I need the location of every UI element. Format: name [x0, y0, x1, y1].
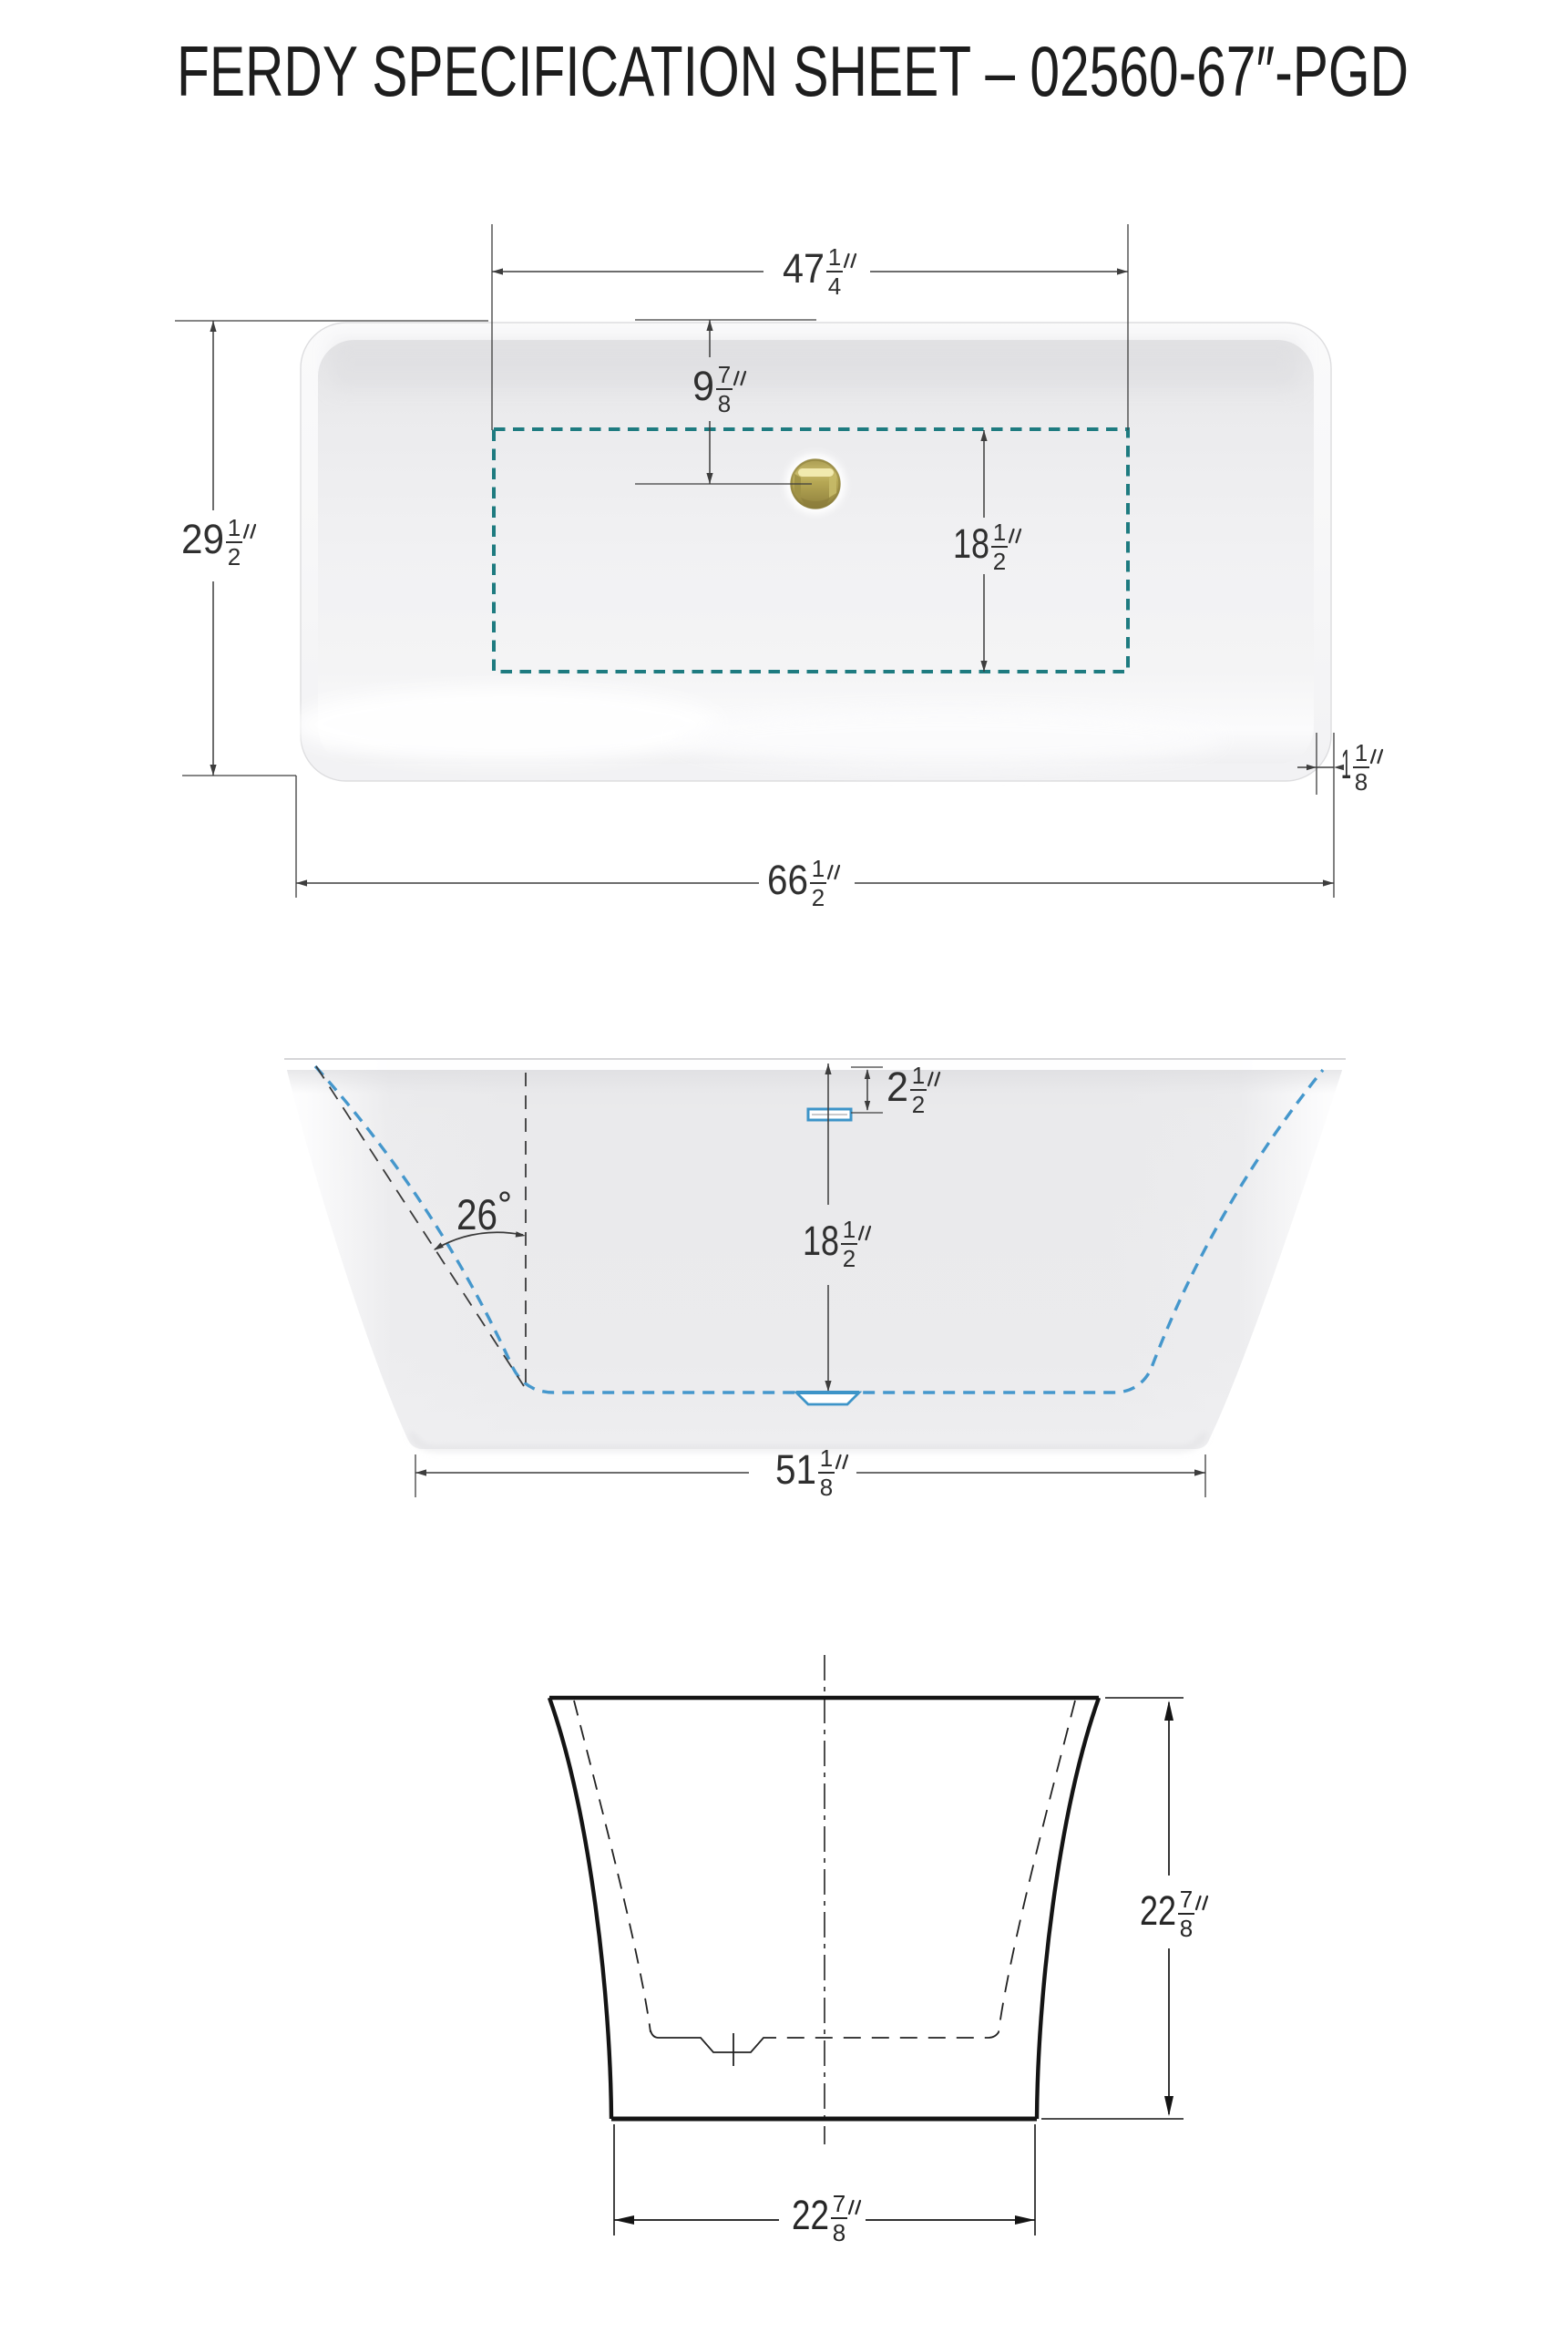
svg-text:8: 8 [833, 2219, 845, 2246]
svg-text:1: 1 [1355, 739, 1368, 766]
svg-text:51: 51 [775, 1446, 816, 1493]
svg-text:1: 1 [843, 1216, 856, 1243]
svg-text:29: 29 [181, 516, 224, 562]
svg-text:18: 18 [803, 1218, 839, 1264]
svg-text:1: 1 [820, 1444, 833, 1472]
svg-text:2: 2 [886, 1064, 908, 1110]
svg-text:26: 26 [456, 1190, 497, 1238]
svg-text:2: 2 [912, 1091, 925, 1118]
svg-text:22: 22 [792, 2192, 829, 2238]
svg-text:8: 8 [1180, 1915, 1193, 1942]
svg-text:8: 8 [718, 390, 731, 417]
svg-text:1: 1 [912, 1062, 925, 1089]
svg-text:47: 47 [783, 245, 825, 292]
svg-text:1: 1 [1341, 741, 1351, 787]
svg-text:18: 18 [953, 520, 989, 567]
svg-text:1: 1 [812, 855, 825, 882]
svg-text:2: 2 [993, 548, 1006, 575]
svg-text:8: 8 [1355, 768, 1368, 796]
svg-text:8: 8 [820, 1474, 833, 1501]
svg-text:1: 1 [828, 243, 841, 271]
svg-text:2: 2 [843, 1245, 856, 1272]
svg-text:4: 4 [828, 272, 841, 300]
svg-text:7: 7 [718, 361, 731, 388]
svg-text:7: 7 [833, 2190, 845, 2217]
svg-text:1: 1 [228, 514, 241, 541]
svg-text:2: 2 [228, 543, 241, 570]
svg-text:9: 9 [692, 363, 714, 409]
svg-text:7: 7 [1180, 1886, 1193, 1913]
svg-text:2: 2 [812, 884, 825, 911]
svg-text:FERDY SPECIFICATION SHEET – 02: FERDY SPECIFICATION SHEET – 02560-67″-PG… [177, 31, 1409, 111]
svg-text:1: 1 [993, 519, 1006, 546]
svg-text:22: 22 [1140, 1887, 1176, 1934]
svg-text:66: 66 [767, 857, 808, 903]
